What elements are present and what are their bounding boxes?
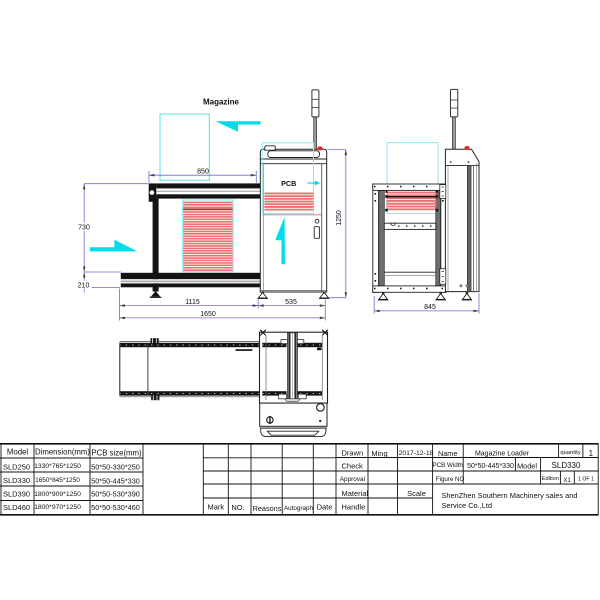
svg-text:Service Co.,Ltd: Service Co.,Ltd <box>442 501 493 510</box>
svg-text:Reasons: Reasons <box>253 504 282 513</box>
svg-text:1250: 1250 <box>336 210 343 226</box>
svg-text:50*50-530*460: 50*50-530*460 <box>91 503 140 512</box>
svg-text:1: 1 <box>589 449 594 458</box>
svg-text:Approval: Approval <box>340 476 365 483</box>
svg-text:845: 845 <box>424 304 436 311</box>
svg-text:730: 730 <box>78 225 90 232</box>
svg-text:50*50-530*390: 50*50-530*390 <box>91 490 140 499</box>
svg-text:SLD330: SLD330 <box>3 476 30 485</box>
svg-text:Name: Name <box>438 449 457 458</box>
svg-text:X1: X1 <box>563 477 571 484</box>
svg-text:2017-12-18: 2017-12-18 <box>399 450 434 457</box>
svg-text:NO.: NO. <box>231 503 244 512</box>
svg-text:ShenZhen Southern Machinery sa: ShenZhen Southern Machinery sales and <box>442 491 578 500</box>
svg-text:Material: Material <box>342 489 369 498</box>
svg-text:Scale: Scale <box>407 489 426 498</box>
svg-text:Figure NO: Figure NO <box>436 476 465 483</box>
svg-text:50*50-445*330: 50*50-445*330 <box>467 463 514 470</box>
svg-text:50*50-445*330: 50*50-445*330 <box>91 476 140 485</box>
svg-text:Autograph: Autograph <box>284 505 314 512</box>
svg-text:210: 210 <box>78 283 90 290</box>
svg-text:Handle: Handle <box>342 503 366 512</box>
svg-text:Check: Check <box>342 462 364 471</box>
svg-text:Date: Date <box>317 503 333 512</box>
svg-text:1800*909*1250: 1800*909*1250 <box>34 491 81 498</box>
svg-text:PCB size(mm): PCB size(mm) <box>91 448 142 457</box>
svg-text:1650*845*1250: 1650*845*1250 <box>35 477 80 484</box>
svg-text:PCB: PCB <box>281 179 296 188</box>
svg-text:850: 850 <box>197 168 209 175</box>
svg-text:quantity: quantity <box>560 450 580 456</box>
svg-text:Model: Model <box>517 462 537 471</box>
svg-text:1 OF 1: 1 OF 1 <box>578 477 594 483</box>
svg-text:Edition: Edition <box>542 476 559 482</box>
svg-text:SLD330: SLD330 <box>552 461 581 470</box>
svg-text:Model: Model <box>7 448 29 457</box>
svg-text:SLD460: SLD460 <box>3 503 30 512</box>
svg-text:Ming: Ming <box>371 449 387 458</box>
svg-text:Magazine Loader: Magazine Loader <box>475 451 530 458</box>
svg-text:50*50-330*250: 50*50-330*250 <box>91 463 140 472</box>
svg-text:1650: 1650 <box>200 311 216 318</box>
svg-text:SLD390: SLD390 <box>3 490 30 499</box>
svg-text:Mark: Mark <box>207 503 224 512</box>
svg-text:1800*970*1250: 1800*970*1250 <box>34 504 81 511</box>
svg-text:Drawn: Drawn <box>342 449 364 458</box>
svg-text:Dimension(mm): Dimension(mm) <box>35 448 90 457</box>
svg-text:SLD250: SLD250 <box>3 463 30 472</box>
svg-text:1115: 1115 <box>185 299 200 306</box>
svg-text:1330*765*1250: 1330*765*1250 <box>34 463 81 470</box>
svg-text:PCB Width: PCB Width <box>433 462 464 469</box>
svg-text:535: 535 <box>285 299 297 306</box>
svg-text:Magazine: Magazine <box>203 98 240 107</box>
